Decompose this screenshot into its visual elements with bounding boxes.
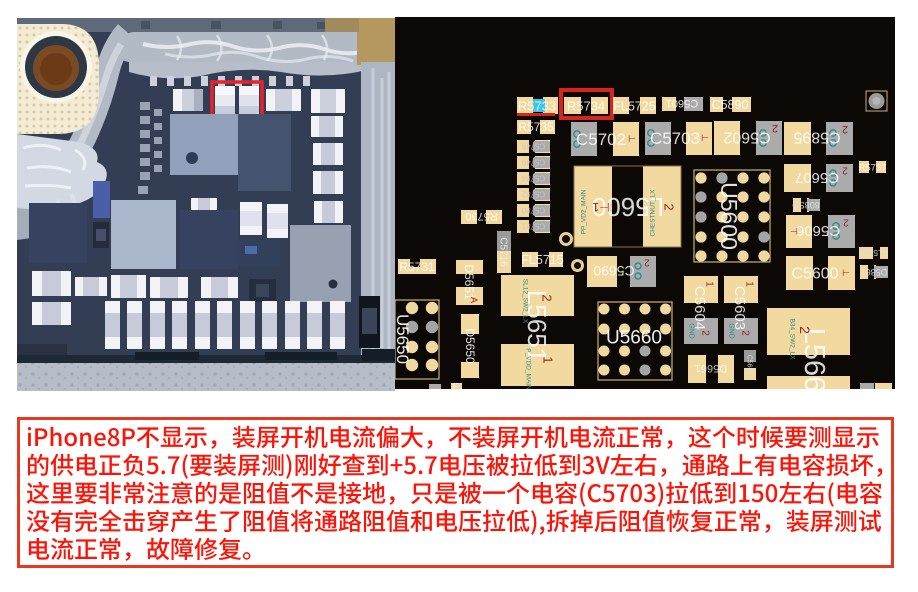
- svg-text:C5702: C5702: [576, 130, 626, 149]
- svg-text:PP_VD2_MAIN: PP_VD2_MAIN: [580, 189, 587, 234]
- svg-text:2: 2: [842, 123, 848, 135]
- svg-text:D5661: D5661: [695, 362, 727, 374]
- svg-text:C5607: C5607: [795, 169, 839, 186]
- svg-text:FL5860: FL5860: [859, 248, 888, 258]
- svg-text:C5703: C5703: [650, 129, 700, 148]
- svg-text:R5733: R5733: [518, 99, 556, 114]
- svg-text:C5690: C5690: [593, 263, 634, 279]
- svg-text:1: 1: [540, 356, 555, 363]
- svg-text:C5782: C5782: [521, 190, 545, 199]
- svg-text:C5781: C5781: [521, 222, 545, 231]
- svg-text:C5600: C5600: [791, 266, 838, 283]
- svg-text:2: 2: [661, 203, 676, 210]
- svg-text:C5749: C5749: [521, 158, 545, 167]
- svg-text:R5730: R5730: [465, 210, 497, 222]
- svg-text:2: 2: [772, 122, 778, 134]
- svg-text:GND: GND: [728, 323, 735, 339]
- svg-text:B34_SW2_LX: B34_SW2_LX: [789, 319, 796, 360]
- svg-text:C5748: C5748: [521, 142, 545, 151]
- svg-text:L566: L566: [798, 328, 830, 389]
- svg-text:U5600: U5600: [716, 182, 742, 250]
- svg-text:P_VDD_MAIN: P_VDD_MAIN: [525, 348, 532, 389]
- svg-text:F: F: [453, 382, 458, 389]
- svg-text:C5716: C5716: [498, 237, 509, 267]
- svg-text:2: 2: [797, 326, 813, 334]
- svg-text:C5784: C5784: [521, 174, 545, 183]
- svg-text:C5780: C5780: [521, 206, 545, 215]
- svg-text:SL12_SW2_LX: SL12_SW2_LX: [522, 279, 529, 324]
- svg-text:⊢: ⊢: [790, 226, 798, 236]
- svg-text:808SD: 808SD: [792, 200, 820, 210]
- svg-text:⊢: ⊢: [628, 134, 636, 144]
- svg-text:2: 2: [843, 217, 849, 228]
- svg-text:FL5725: FL5725: [613, 99, 655, 113]
- svg-text:D5650: D5650: [463, 328, 477, 364]
- svg-text:C5660: C5660: [746, 355, 753, 376]
- svg-text:2: 2: [740, 330, 751, 336]
- svg-text:1: 1: [704, 281, 715, 287]
- svg-text:GND: GND: [688, 323, 695, 339]
- svg-text:C5601: C5601: [666, 97, 698, 109]
- svg-text:2: 2: [644, 257, 650, 268]
- svg-text:1: 1: [744, 281, 755, 287]
- svg-text:R5731: R5731: [399, 260, 435, 274]
- svg-text:R5735: R5735: [518, 120, 554, 134]
- svg-text:R5737: R5737: [859, 162, 887, 173]
- svg-text:C5895: C5895: [793, 128, 840, 145]
- svg-text:2: 2: [700, 330, 711, 336]
- svg-text:U5650: U5650: [395, 314, 412, 364]
- svg-text:D5861: D5861: [861, 267, 888, 277]
- svg-text:C5602: C5602: [723, 128, 770, 145]
- svg-text:R5734: R5734: [567, 99, 605, 114]
- svg-text:2: 2: [539, 294, 554, 301]
- svg-text:⊢: ⊢: [701, 133, 709, 143]
- svg-text:2: 2: [842, 165, 848, 176]
- svg-text:⊢1: ⊢1: [592, 200, 609, 214]
- svg-text:C5890: C5890: [712, 98, 749, 112]
- svg-text:C5606: C5606: [796, 222, 840, 239]
- svg-text:A: A: [469, 297, 479, 303]
- svg-text:⊢: ⊢: [842, 268, 850, 278]
- svg-text:D5651: D5651: [462, 264, 476, 300]
- svg-text:FL5715: FL5715: [521, 253, 563, 267]
- svg-text:CHESTNUT_LX: CHESTNUT_LX: [649, 189, 656, 237]
- svg-text:U5660: U5660: [606, 328, 662, 349]
